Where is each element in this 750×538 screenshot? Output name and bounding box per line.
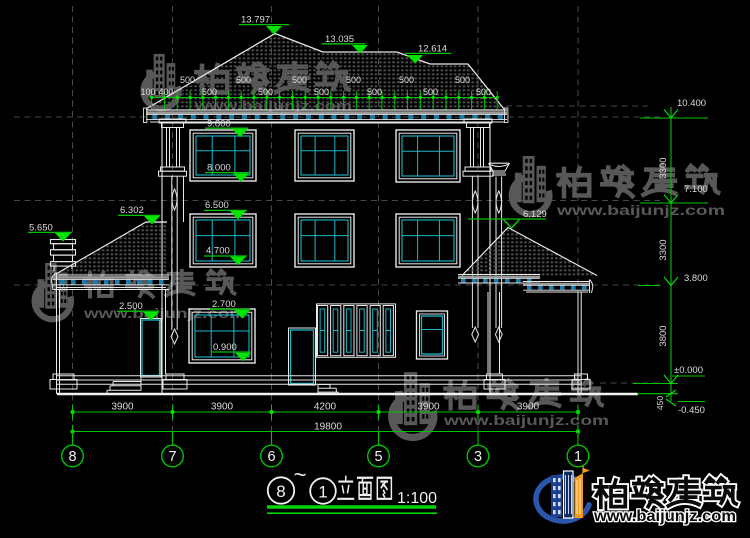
svg-text:500: 500: [314, 87, 329, 97]
svg-text:6.302: 6.302: [120, 205, 144, 216]
svg-text:6.500: 6.500: [205, 200, 229, 211]
svg-text:8: 8: [276, 482, 285, 501]
svg-text:500: 500: [399, 75, 414, 85]
svg-text:6: 6: [267, 449, 275, 465]
svg-text:3.800: 3.800: [684, 273, 708, 284]
svg-text:3900: 3900: [417, 402, 440, 413]
svg-text:450: 450: [655, 396, 665, 410]
svg-text:5: 5: [374, 449, 382, 465]
svg-text:10.400: 10.400: [677, 98, 706, 109]
svg-text:400: 400: [158, 87, 173, 97]
svg-text:500: 500: [202, 87, 217, 97]
svg-text:4.700: 4.700: [206, 246, 230, 257]
svg-text:500: 500: [455, 75, 470, 85]
svg-text:±0.000: ±0.000: [674, 365, 703, 376]
svg-text:1:100: 1:100: [397, 490, 437, 507]
svg-text:3300: 3300: [658, 157, 669, 178]
svg-text:100: 100: [140, 87, 155, 97]
svg-text:500: 500: [346, 75, 361, 85]
svg-text:-0.450: -0.450: [678, 405, 705, 416]
svg-text:7: 7: [168, 449, 176, 465]
svg-text:3900: 3900: [517, 402, 540, 413]
svg-text:www.baijunjz.com: www.baijunjz.com: [556, 202, 725, 218]
svg-text:19800: 19800: [314, 422, 342, 433]
svg-text:500: 500: [423, 87, 438, 97]
svg-text:3300: 3300: [658, 239, 669, 260]
svg-text:500: 500: [292, 75, 307, 85]
svg-text:www.baijunjz.com: www.baijunjz.com: [443, 413, 609, 428]
svg-text:3900: 3900: [111, 402, 134, 413]
svg-text:8: 8: [68, 449, 76, 465]
svg-text:500: 500: [367, 87, 382, 97]
svg-text:4200: 4200: [314, 402, 337, 413]
svg-text:7.100: 7.100: [684, 184, 708, 195]
svg-text:~: ~: [294, 462, 307, 487]
svg-text:www.baijunjz.com: www.baijunjz.com: [593, 508, 736, 525]
svg-text:3800: 3800: [658, 325, 669, 346]
svg-text:1: 1: [574, 449, 582, 465]
svg-text:8.000: 8.000: [207, 162, 231, 173]
svg-text:500: 500: [258, 87, 273, 97]
svg-text:2.700: 2.700: [212, 299, 236, 310]
svg-text:500: 500: [236, 75, 251, 85]
svg-text:1: 1: [318, 483, 327, 502]
svg-text:3: 3: [474, 449, 482, 465]
svg-text:2.500: 2.500: [119, 301, 143, 312]
svg-text:500: 500: [476, 87, 491, 97]
svg-text:3900: 3900: [211, 402, 234, 413]
svg-text:500: 500: [180, 75, 195, 85]
